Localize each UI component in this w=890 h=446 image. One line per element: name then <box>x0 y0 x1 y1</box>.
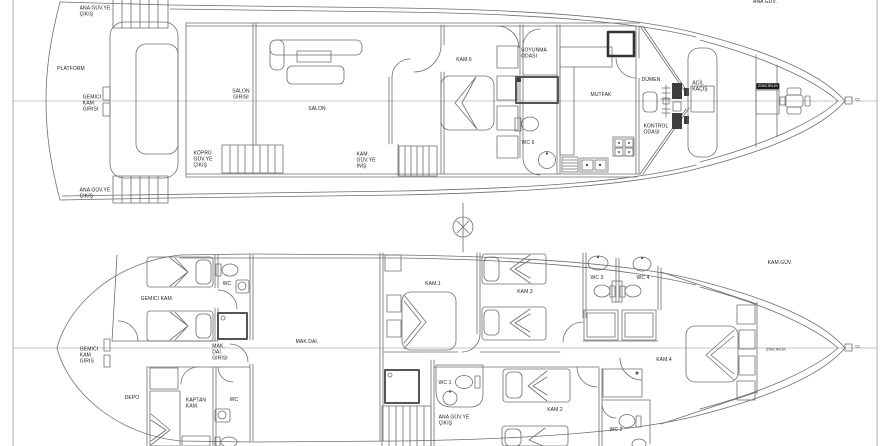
kam2-bed-1-fold <box>528 371 547 401</box>
crew-entry-hatch-lower-2 <box>104 355 110 367</box>
captain-cabinet <box>150 368 178 389</box>
wc2-sink <box>632 439 646 446</box>
wc4-sink-tap <box>641 257 643 259</box>
crew-wc-sink-bowl <box>238 282 246 290</box>
wc3-sink-tap <box>597 256 599 258</box>
kam4-wardrobe-knob <box>636 372 639 375</box>
wc6-toilet <box>522 117 539 131</box>
wc4-shower <box>622 310 656 340</box>
burner-dot-4 <box>628 151 630 153</box>
wc2-toilet <box>619 415 635 428</box>
captain-bed-fold <box>151 414 170 445</box>
wc-plumbing-box <box>612 281 622 302</box>
salon-table-large <box>287 66 344 84</box>
soyunma-shower <box>516 77 558 103</box>
windshield-lines <box>640 26 689 174</box>
wc1-sink-tap <box>449 390 451 392</box>
wc3-shower <box>584 310 618 340</box>
wc1-shower-drain <box>388 373 392 377</box>
windlass-drum-top <box>787 88 801 95</box>
kam1-headboard-2 <box>387 320 401 337</box>
crew-entry-hatch-lower-1 <box>104 339 110 351</box>
salon-table-small <box>297 51 331 62</box>
kam2-bed-2-fold <box>529 428 545 446</box>
kam6-bed <box>441 76 494 130</box>
crew-bed-1 <box>147 257 213 287</box>
kam2-bed-1-pillow <box>506 372 522 398</box>
section-marker <box>453 203 473 252</box>
wc3-toilet <box>594 285 610 297</box>
captain-bed <box>150 391 180 446</box>
kam3-bed-2-pillow <box>484 310 499 335</box>
kam1-bed-fold <box>404 295 426 349</box>
crew-shower-drain <box>221 316 225 320</box>
kam4-headboard-1 <box>739 330 755 349</box>
crew-bed-2-pillow <box>196 314 211 338</box>
burner-dot-3 <box>618 151 620 153</box>
kam1-wardrobe <box>385 255 401 271</box>
console-panel-3 <box>673 102 681 111</box>
kam3-bed-2-fold <box>510 309 530 337</box>
foredeck-pad <box>688 48 717 157</box>
kam1-headboard-1 <box>387 295 401 312</box>
burner-dot-2 <box>628 142 630 144</box>
ga-plan-canvas: ANA GÜV.ANA GÜV.YE ÇIKIŞPLATFORMGEMICI K… <box>0 0 890 446</box>
kam6-wardrobes <box>497 46 518 158</box>
bow-tip-marker-upper <box>845 97 852 104</box>
crew-bed-1-fold <box>170 258 188 286</box>
cabin-deck-stairs <box>399 146 437 176</box>
escape-hatch <box>691 86 714 112</box>
upper-deck-plan <box>13 0 877 203</box>
upper-deck-edge-lines <box>62 9 696 196</box>
crew-bed-2 <box>147 311 213 341</box>
wc1-sink <box>443 391 457 405</box>
kam6-bed-fold <box>455 77 477 129</box>
lower-stairs <box>382 406 431 446</box>
stove-burners <box>615 139 633 156</box>
lower-deck-plan <box>13 253 877 446</box>
console-panel-1 <box>672 83 682 99</box>
chain-locker-box-lower-1 <box>737 305 755 324</box>
crew-wc-toilet-tank <box>216 264 221 276</box>
wc3-toilet-tank <box>610 286 615 297</box>
kam2-bed-1 <box>503 369 570 402</box>
aft-structure-outer <box>110 22 178 178</box>
crew-bed-2-fold <box>170 312 188 340</box>
shower-drain-mark <box>517 78 521 82</box>
wc2-toilet-tank <box>636 416 641 427</box>
burner-dot-1 <box>618 142 620 144</box>
crew-wc-toilet <box>222 264 238 276</box>
aft-structure-inner <box>136 44 178 154</box>
crew-entry-hatch-upper-1 <box>103 87 110 100</box>
wc6-sink-tap <box>546 152 548 154</box>
windlass-drum-bottom <box>787 107 801 114</box>
captain-wc-sink-bowl <box>218 411 226 419</box>
lower-walls <box>112 253 757 446</box>
wc4-toilet <box>625 285 641 297</box>
galley-fridge <box>562 157 578 172</box>
wc1-shower <box>385 370 419 403</box>
crew-bed-1-pillow <box>196 260 211 284</box>
bridge-stairs <box>222 145 283 173</box>
wc4-toilet-tank <box>620 286 625 297</box>
chain-locker-box-upper <box>756 90 779 114</box>
kam4-bed-fold <box>706 330 734 380</box>
wc1-toilet <box>456 376 473 389</box>
wc1-toilet-tank <box>475 376 480 388</box>
deckhouse-walls <box>186 23 640 177</box>
plan-linework <box>0 0 890 446</box>
sink-tap-2 <box>599 164 601 166</box>
wc4-shower-inner <box>625 313 653 337</box>
fridge-vents <box>563 160 577 169</box>
sink-tap-1 <box>586 164 588 166</box>
kam4-headboard-2 <box>739 356 755 375</box>
wc3-shower-inner <box>587 313 615 337</box>
crew-entry-hatch-upper-2 <box>103 103 110 116</box>
console-panel-2 <box>672 113 682 129</box>
helm-seat <box>643 92 657 112</box>
crew-shower <box>218 313 247 339</box>
bow-tip-marker-lower <box>845 344 852 351</box>
galley-stove <box>613 137 634 156</box>
